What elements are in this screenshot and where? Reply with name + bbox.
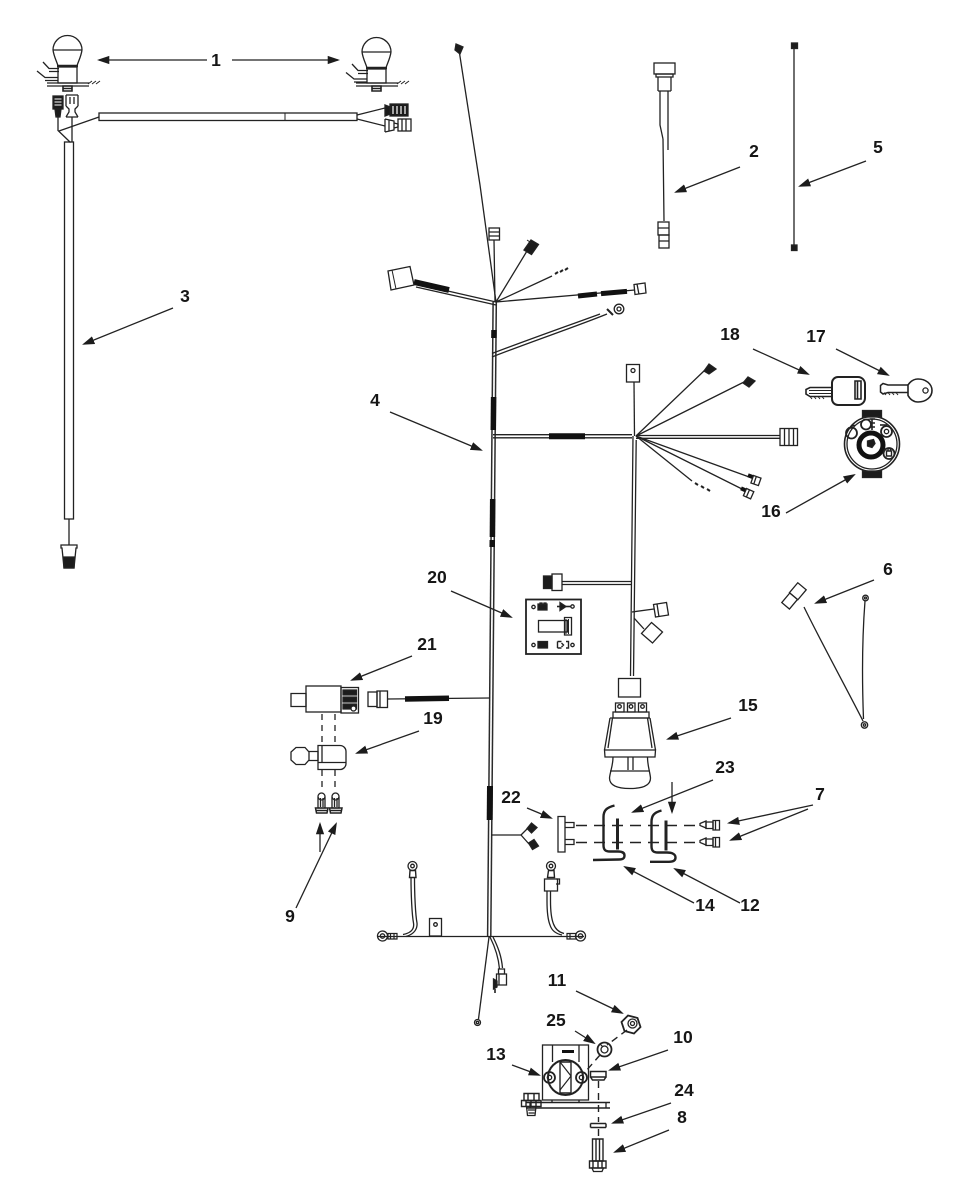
- svg-text:14: 14: [695, 895, 715, 915]
- svg-text:12: 12: [740, 895, 760, 915]
- svg-text:25: 25: [546, 1010, 566, 1030]
- svg-text:5: 5: [873, 137, 883, 157]
- svg-text:21: 21: [417, 634, 437, 654]
- svg-text:4: 4: [370, 390, 380, 410]
- svg-text:19: 19: [423, 708, 443, 728]
- svg-text:1: 1: [211, 50, 221, 70]
- svg-text:11: 11: [548, 970, 567, 990]
- svg-text:22: 22: [501, 787, 521, 807]
- svg-text:20: 20: [427, 567, 447, 587]
- svg-text:16: 16: [761, 501, 781, 521]
- svg-text:8: 8: [677, 1107, 687, 1127]
- svg-text:13: 13: [486, 1044, 506, 1064]
- svg-text:10: 10: [673, 1027, 693, 1047]
- svg-text:2: 2: [749, 141, 759, 161]
- svg-text:9: 9: [285, 906, 295, 926]
- svg-text:17: 17: [806, 326, 825, 346]
- svg-text:3: 3: [180, 286, 190, 306]
- svg-text:15: 15: [738, 695, 758, 715]
- svg-text:7: 7: [815, 784, 825, 804]
- svg-text:18: 18: [720, 324, 740, 344]
- svg-text:24: 24: [674, 1080, 694, 1100]
- svg-text:6: 6: [883, 559, 893, 579]
- svg-text:23: 23: [715, 757, 735, 777]
